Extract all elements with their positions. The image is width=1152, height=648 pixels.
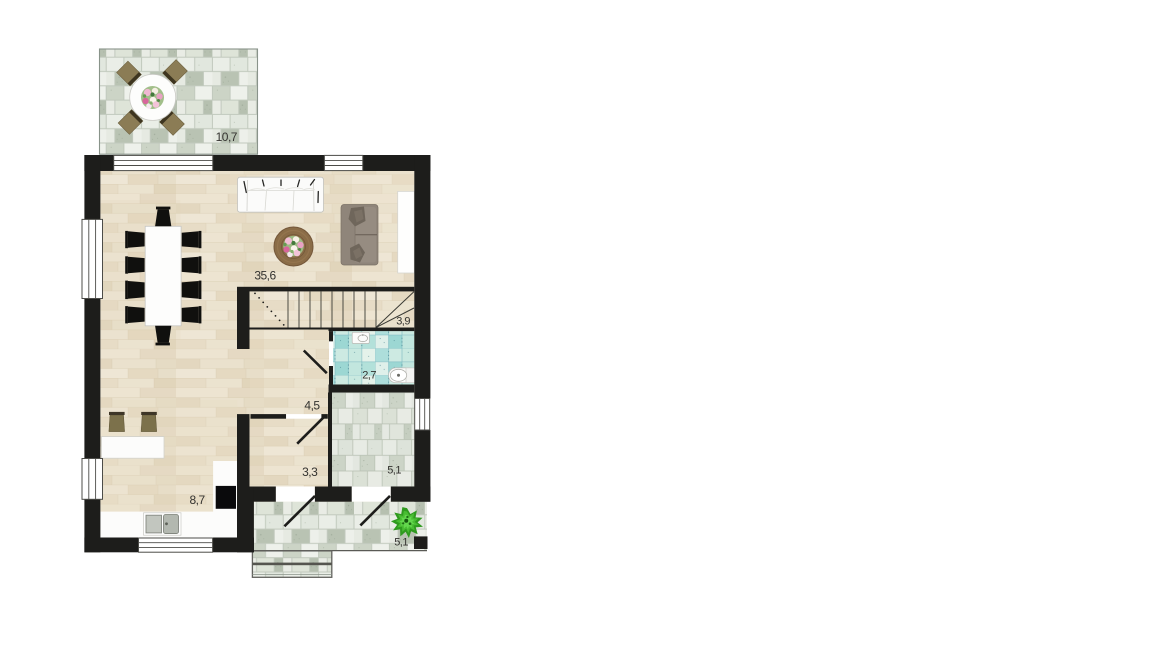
svg-text:2,7: 2,7 [362, 370, 376, 382]
svg-text:4,5: 4,5 [304, 398, 320, 412]
svg-text:3,9: 3,9 [396, 315, 410, 327]
svg-text:3,3: 3,3 [302, 465, 318, 479]
svg-text:5,1: 5,1 [394, 537, 408, 549]
svg-text:8,7: 8,7 [190, 493, 206, 507]
svg-text:5,1: 5,1 [387, 464, 401, 476]
svg-text:10,7: 10,7 [216, 130, 238, 144]
svg-text:35,6: 35,6 [254, 269, 276, 283]
